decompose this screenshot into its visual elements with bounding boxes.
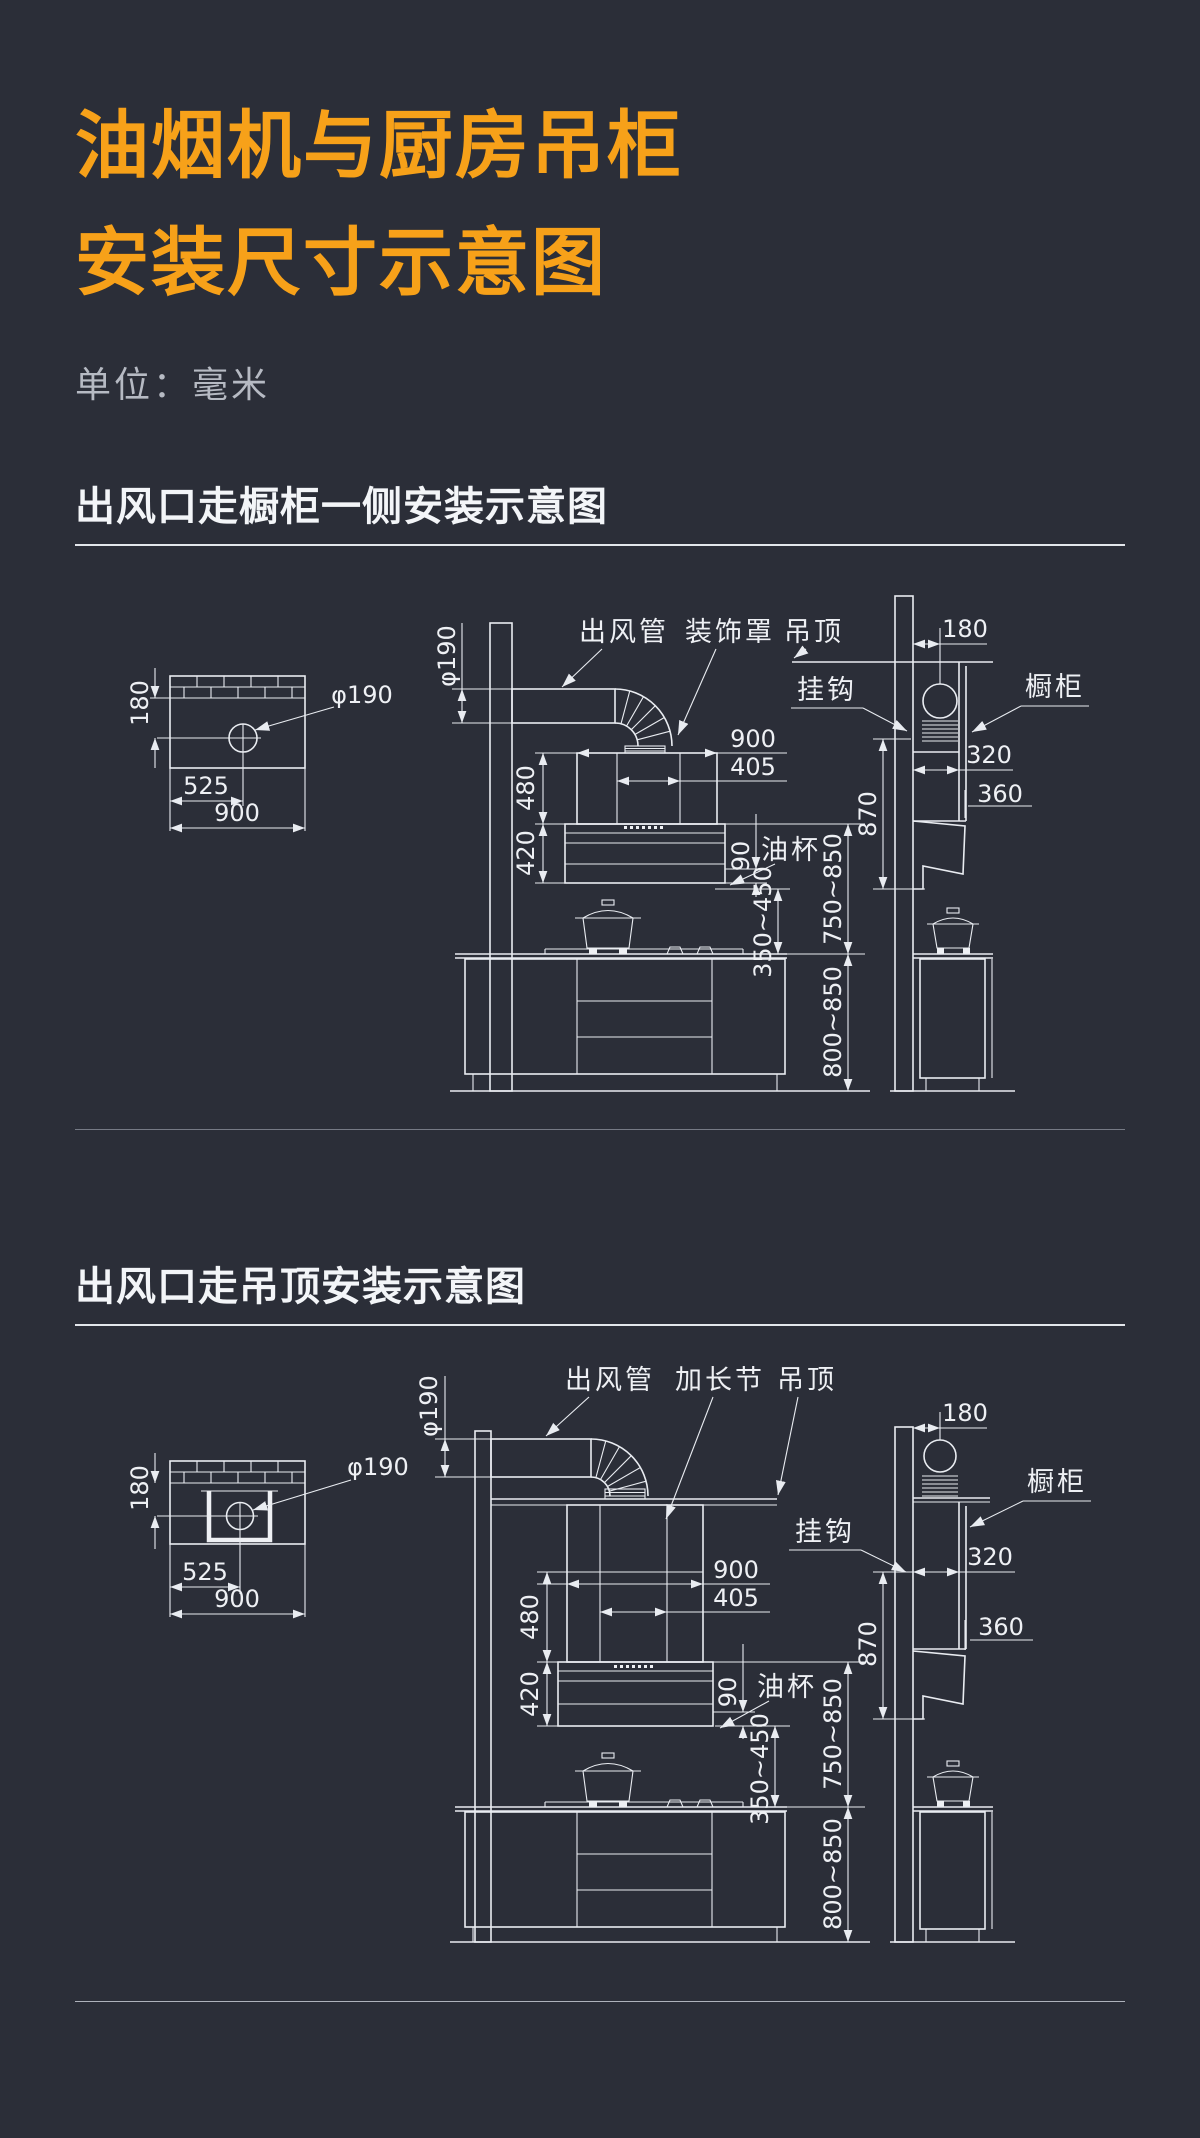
section2-heading-rule: [75, 1324, 1125, 1326]
brick-courses: [170, 676, 305, 698]
dim-420: 420: [516, 1671, 544, 1717]
wall-column-2: [475, 1431, 491, 1942]
dim-350-450: 350~450: [746, 1713, 774, 1825]
side-view: 180 320 橱柜 360 870: [854, 596, 1089, 1091]
base-cabinet: [465, 959, 785, 1091]
wall-front-view: 180 525 900 φ190: [126, 668, 393, 831]
countertop-2: [455, 1807, 787, 1811]
base-cabinet-2: [465, 1812, 785, 1942]
dim-side-180: 180: [942, 615, 988, 643]
footer-rule: [75, 2001, 1125, 2002]
dim-360: 360: [977, 780, 1023, 808]
hood-side-profile-2: [913, 1651, 965, 1719]
title-line-2: 安装尺寸示意图: [75, 220, 607, 306]
side-pot-2: [927, 1761, 979, 1807]
oil-cup-label: 油杯: [761, 835, 821, 866]
dim-750-850: 750~850: [819, 1678, 847, 1790]
decorative-cover: [577, 753, 717, 824]
dim-duct-dia: φ190: [415, 1375, 443, 1437]
wall-column: [490, 623, 512, 1091]
title-line-1: 油烟机与厨房吊柜: [75, 103, 683, 189]
hood-side-profile: [913, 821, 965, 889]
side-countertop-2: [913, 1807, 993, 1811]
upper-cabinet-side-2: [913, 1502, 966, 1649]
dim-wall-900: 900: [214, 799, 260, 827]
dim-duct-dia: φ190: [433, 625, 461, 687]
cabinet-label: 橱柜: [1025, 672, 1085, 703]
section1-heading: 出风口走橱柜一侧安装示意图: [75, 474, 1125, 532]
duct-elbow-2: [591, 1439, 648, 1499]
dim-hole-dia: φ190: [347, 1453, 409, 1481]
dim-320: 320: [967, 1543, 1013, 1571]
extension-label: 加长节: [675, 1365, 765, 1396]
dim-wall-900: 900: [214, 1585, 260, 1613]
side-duct-circle: [923, 684, 957, 718]
cooktop-2: [545, 1800, 743, 1807]
cooktop: [545, 947, 743, 954]
side-base-cabinet-2: [920, 1812, 992, 1942]
dim-350-450: 350~450: [749, 866, 777, 978]
cover-label: 装饰罩: [685, 617, 775, 648]
hook-label: 挂钩: [795, 1517, 855, 1548]
control-panel-dots-2: [614, 1665, 653, 1668]
side-pot: [927, 908, 979, 954]
dim-320: 320: [966, 741, 1012, 769]
dim-800-850: 800~850: [819, 1818, 847, 1930]
duct-rings-2: [922, 1476, 958, 1496]
dim-wall-180: 180: [126, 1465, 154, 1511]
duct-elbow: [615, 689, 672, 753]
section1-heading-rule: [75, 544, 1125, 546]
main-elevation: φ190 900: [433, 617, 993, 1091]
hood-body: [565, 824, 725, 883]
page-title: 油烟机与厨房吊柜安装尺寸示意图: [75, 0, 1125, 322]
brick-courses-2: [170, 1461, 305, 1483]
side-base-cabinet: [920, 959, 992, 1091]
dim-480: 480: [516, 1594, 544, 1640]
main-elevation-2: φ190: [415, 1365, 906, 1942]
ceiling-label: 吊顶: [784, 617, 844, 648]
duct-rings: [922, 721, 958, 741]
duct-label: 出风管: [565, 1365, 655, 1396]
dim-side-180: 180: [942, 1399, 988, 1427]
flex-duct-2: [491, 1439, 591, 1477]
dim-outlet-405: 405: [713, 1584, 759, 1612]
side-duct-circle-2: [924, 1440, 956, 1472]
dim-hood-900: 900: [713, 1556, 759, 1584]
countertop: [455, 954, 787, 958]
dim-870: 870: [854, 791, 882, 837]
cabinet-label: 橱柜: [1027, 1467, 1087, 1498]
hood-body-2: [558, 1662, 713, 1726]
dim-outlet-405: 405: [730, 753, 776, 781]
dim-870: 870: [854, 1621, 882, 1667]
flex-duct: [512, 689, 615, 723]
dim-wall-180: 180: [126, 680, 154, 726]
dim-90: 90: [714, 1677, 742, 1708]
side-wall-column: [895, 596, 913, 1091]
dim-800-850: 800~850: [819, 966, 847, 1078]
dim-hole-dia: φ190: [331, 681, 393, 709]
oil-cup-label: 油杯: [757, 1672, 817, 1703]
section-divider: [75, 1129, 1125, 1130]
section2-heading: 出风口走吊顶安装示意图: [75, 1254, 1125, 1312]
duct-label: 出风管: [579, 617, 669, 648]
dim-wall-525: 525: [182, 1558, 228, 1586]
unit-label: 单位：毫米: [75, 356, 1125, 408]
dim-750-850: 750~850: [819, 833, 847, 945]
section2-diagram: 180 525 900 φ190 φ190: [75, 1344, 1125, 1964]
hook-label: 挂钩: [797, 675, 857, 706]
wall-front-view-2: 180 525 900 φ190: [126, 1453, 409, 1617]
control-panel-dots: [624, 826, 663, 829]
dim-360: 360: [978, 1613, 1024, 1641]
side-view-2: 180 320 橱柜 360 870: [854, 1399, 1091, 1942]
dim-480: 480: [512, 765, 540, 811]
dim-wall-525: 525: [183, 772, 229, 800]
section1-diagram: 180 525 900 φ190 φ190: [75, 556, 1125, 1121]
side-countertop: [913, 954, 993, 958]
side-wall-column-2: [895, 1427, 913, 1942]
page-content: 油烟机与厨房吊柜安装尺寸示意图 单位：毫米 出风口走橱柜一侧安装示意图: [75, 0, 1125, 2002]
pot: [575, 900, 641, 954]
dim-hood-900: 900: [730, 725, 776, 753]
dim-420: 420: [512, 830, 540, 876]
ceiling-label: 吊顶: [777, 1365, 837, 1396]
pot-2: [575, 1753, 641, 1807]
